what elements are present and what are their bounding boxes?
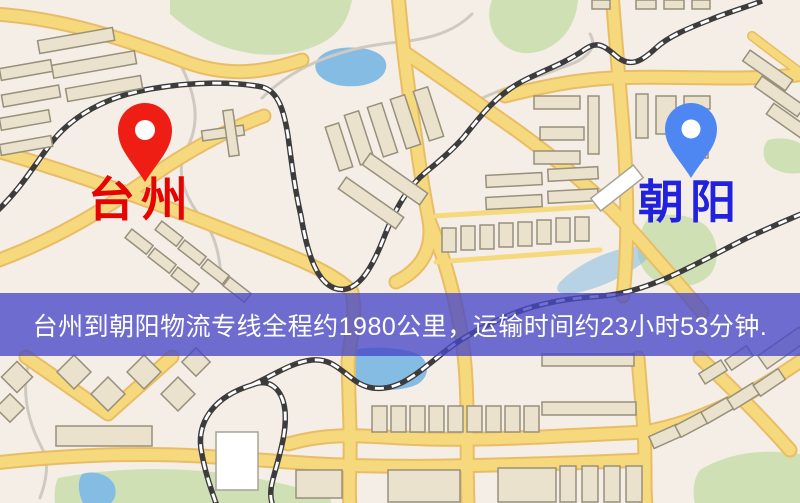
origin-city-label: 台州 xyxy=(88,176,194,223)
destination-city-label: 朝阳 xyxy=(638,179,742,225)
map-canvas[interactable]: 台州 朝阳 台州到朝阳物流专线全程约1980公里，运输时间约23小时53分钟. xyxy=(0,0,800,503)
route-info-banner: 台州到朝阳物流专线全程约1980公里，运输时间约23小时53分钟. xyxy=(0,293,800,356)
street-map xyxy=(0,0,800,503)
route-info-text: 台州到朝阳物流专线全程约1980公里，运输时间约23小时53分钟. xyxy=(33,307,768,343)
